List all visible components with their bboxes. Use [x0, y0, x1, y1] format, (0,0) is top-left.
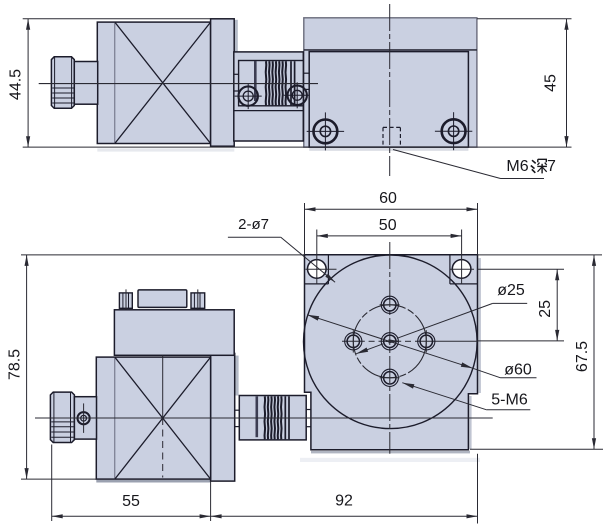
svg-text:2-ø7: 2-ø7 [238, 216, 269, 233]
svg-text:60: 60 [379, 190, 397, 207]
svg-text:ø25: ø25 [497, 282, 525, 299]
svg-text:55: 55 [122, 493, 140, 510]
svg-text:7: 7 [547, 158, 556, 175]
svg-text:78.5: 78.5 [6, 349, 23, 380]
svg-text:50: 50 [379, 217, 397, 234]
svg-text:92: 92 [335, 493, 353, 510]
svg-text:M6: M6 [506, 158, 528, 175]
svg-text:45: 45 [543, 74, 560, 92]
svg-text:44.5: 44.5 [8, 69, 25, 100]
svg-text:67.5: 67.5 [574, 341, 591, 372]
svg-text:ø60: ø60 [504, 361, 532, 378]
svg-text:5-M6: 5-M6 [491, 392, 528, 409]
svg-text:25: 25 [537, 300, 554, 318]
